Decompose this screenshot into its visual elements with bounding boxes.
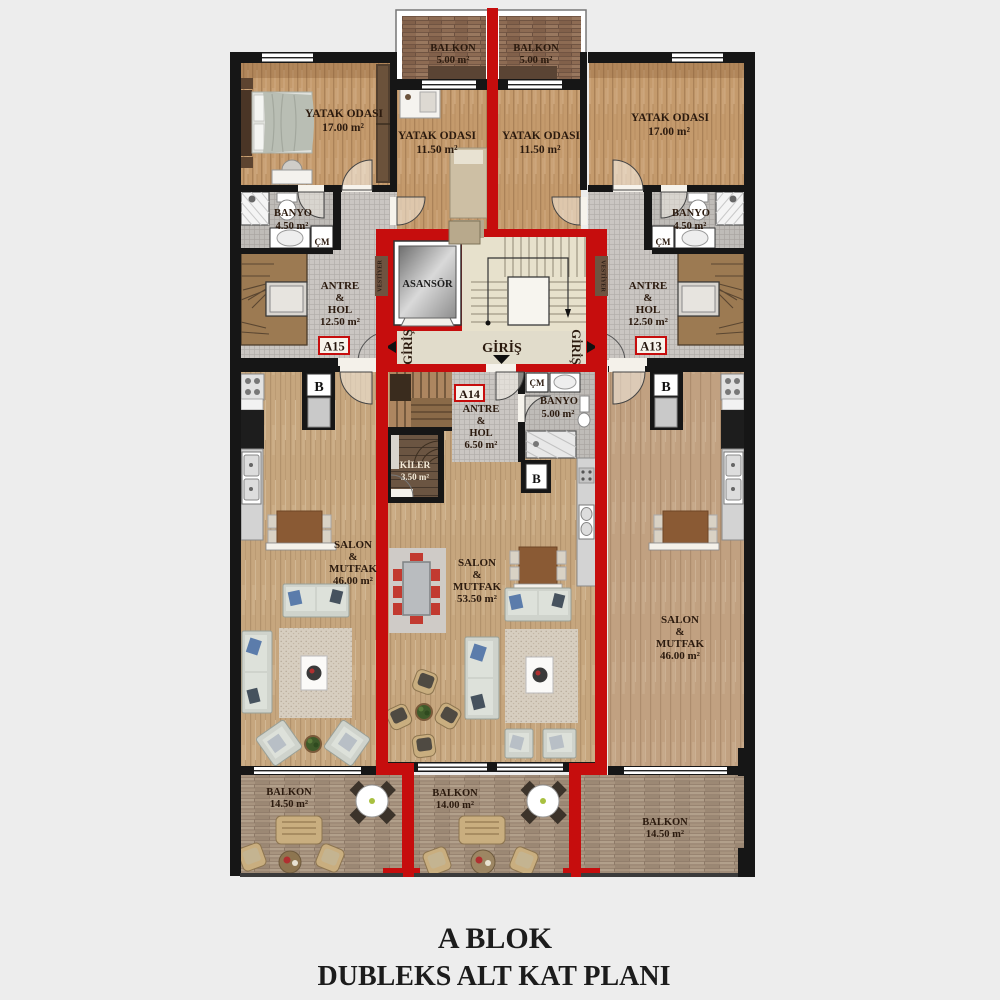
svg-text:YATAK ODASI: YATAK ODASI — [502, 130, 581, 142]
svg-text:6.50 m²: 6.50 m² — [465, 440, 498, 451]
svg-text:BALKON: BALKON — [642, 817, 688, 828]
svg-text:14.00 m²: 14.00 m² — [436, 800, 474, 811]
svg-text:VESTİYER: VESTİYER — [600, 260, 607, 292]
svg-text:BANYO: BANYO — [672, 208, 710, 219]
svg-text:GİRİŞ: GİRİŞ — [569, 329, 583, 364]
svg-text:14.50 m²: 14.50 m² — [270, 799, 308, 810]
svg-text:4.50 m²: 4.50 m² — [276, 221, 309, 232]
svg-text:SALON: SALON — [458, 557, 496, 569]
svg-text:46.00 m²: 46.00 m² — [333, 575, 374, 587]
svg-text:B: B — [532, 471, 541, 486]
svg-text:ASANSÖR: ASANSÖR — [402, 277, 453, 290]
svg-text:4.50 m²: 4.50 m² — [674, 221, 707, 232]
svg-text:VESTİYER: VESTİYER — [377, 260, 384, 292]
svg-text:MUTFAK: MUTFAK — [656, 638, 705, 650]
svg-text:&: & — [335, 292, 344, 304]
svg-text:BALKON: BALKON — [513, 43, 559, 54]
svg-text:&: & — [675, 626, 684, 638]
svg-text:BANYO: BANYO — [274, 208, 312, 219]
svg-text:YATAK ODASI: YATAK ODASI — [631, 112, 710, 124]
svg-text:17.00 m²: 17.00 m² — [648, 126, 690, 138]
svg-text:A14: A14 — [459, 387, 480, 401]
svg-text:GİRİŞ: GİRİŞ — [401, 329, 415, 364]
svg-text:ÇM: ÇM — [315, 237, 330, 247]
svg-text:12.50 m²: 12.50 m² — [320, 316, 361, 328]
svg-text:11.50 m²: 11.50 m² — [519, 144, 561, 156]
svg-text:BANYO: BANYO — [540, 396, 578, 407]
svg-text:DUBLEKS ALT KAT PLANI: DUBLEKS ALT KAT PLANI — [318, 961, 671, 992]
svg-text:SALON: SALON — [334, 539, 372, 551]
svg-text:B: B — [661, 380, 670, 395]
svg-text:SALON: SALON — [661, 614, 699, 626]
svg-text:5.00 m²: 5.00 m² — [520, 55, 553, 66]
svg-text:&: & — [643, 292, 652, 304]
svg-text:HOL: HOL — [636, 304, 660, 316]
svg-text:5.00 m²: 5.00 m² — [437, 55, 470, 66]
svg-text:YATAK ODASI: YATAK ODASI — [305, 108, 384, 120]
svg-text:ANTRE: ANTRE — [629, 280, 668, 292]
svg-text:3.50 m²: 3.50 m² — [401, 472, 429, 482]
svg-text:&: & — [472, 569, 481, 581]
svg-text:ANTRE: ANTRE — [321, 280, 360, 292]
svg-text:MUTFAK: MUTFAK — [453, 581, 502, 593]
svg-text:ANTRE: ANTRE — [463, 404, 500, 415]
svg-text:KİLER: KİLER — [400, 459, 431, 471]
svg-text:BALKON: BALKON — [266, 787, 312, 798]
svg-text:HOL: HOL — [469, 428, 492, 439]
svg-text:BALKON: BALKON — [430, 43, 476, 54]
svg-text:&: & — [348, 551, 357, 563]
svg-text:MUTFAK: MUTFAK — [329, 563, 378, 575]
svg-text:53.50 m²: 53.50 m² — [457, 593, 498, 605]
svg-text:46.00 m²: 46.00 m² — [660, 650, 701, 662]
svg-text:YATAK ODASI: YATAK ODASI — [398, 130, 477, 142]
svg-text:A13: A13 — [640, 340, 662, 354]
svg-text:&: & — [477, 416, 486, 427]
svg-text:5.00 m²: 5.00 m² — [542, 409, 575, 420]
svg-text:A BLOK: A BLOK — [438, 922, 553, 955]
svg-text:B: B — [314, 380, 323, 395]
svg-text:ÇM: ÇM — [656, 237, 671, 247]
svg-text:BALKON: BALKON — [432, 788, 478, 799]
svg-text:HOL: HOL — [328, 304, 352, 316]
svg-text:17.00 m²: 17.00 m² — [322, 122, 364, 134]
svg-text:14.50 m²: 14.50 m² — [646, 829, 684, 840]
svg-text:A15: A15 — [323, 340, 345, 354]
svg-text:12.50 m²: 12.50 m² — [628, 316, 669, 328]
svg-text:GİRİŞ: GİRİŞ — [482, 339, 522, 356]
svg-text:11.50 m²: 11.50 m² — [416, 144, 458, 156]
svg-text:ÇM: ÇM — [530, 378, 545, 388]
